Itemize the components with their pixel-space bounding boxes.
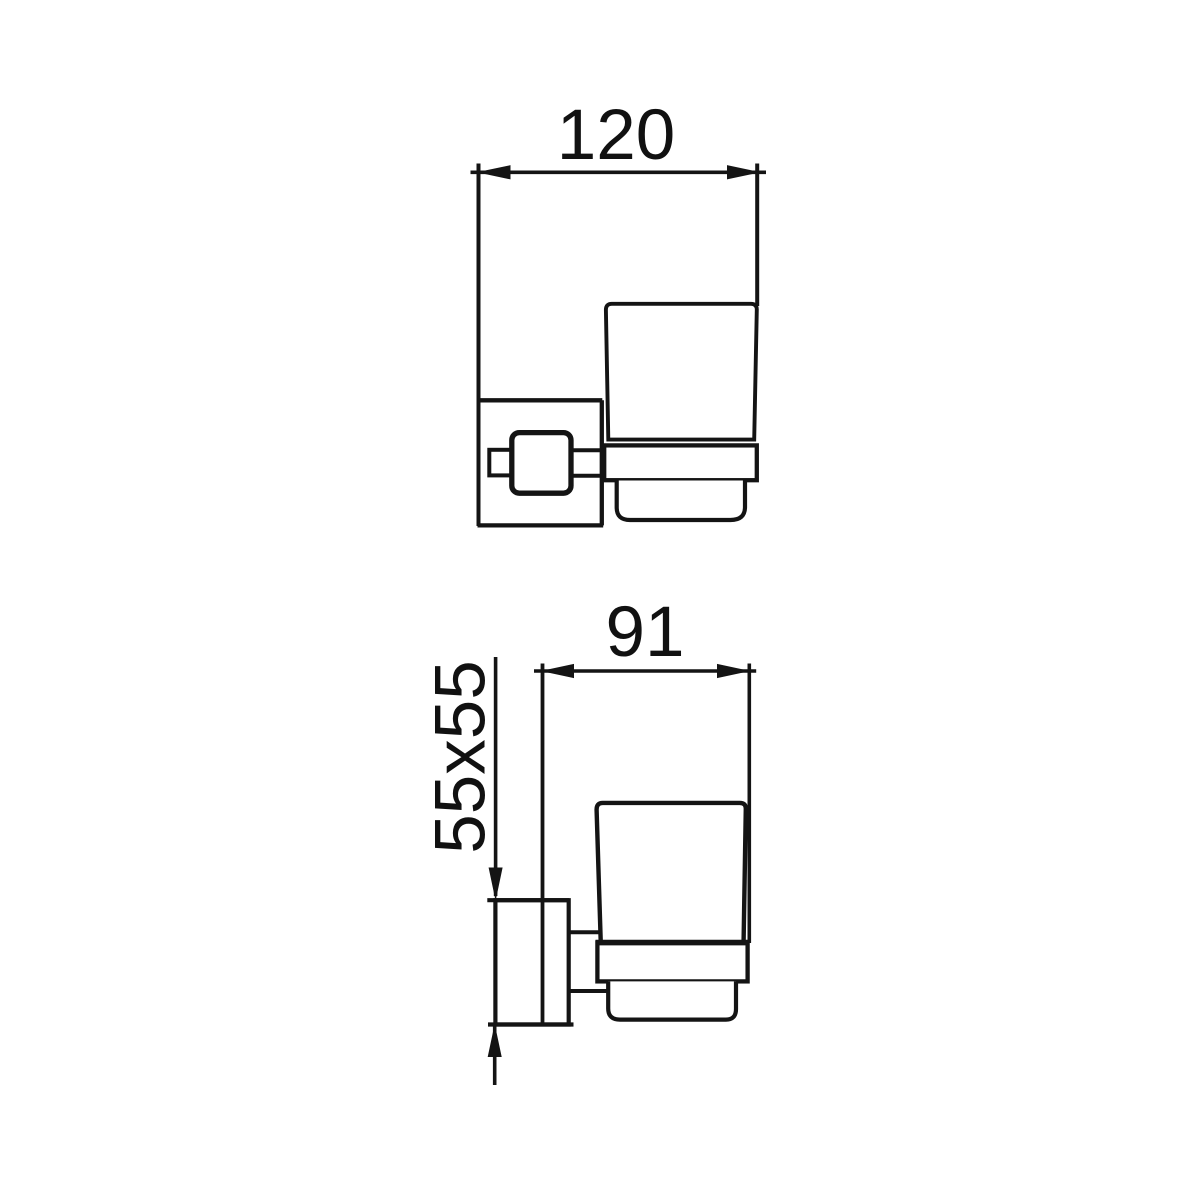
svg-text:55x55: 55x55 [422,660,501,853]
svg-text:91: 91 [606,593,685,672]
svg-text:120: 120 [557,96,675,175]
